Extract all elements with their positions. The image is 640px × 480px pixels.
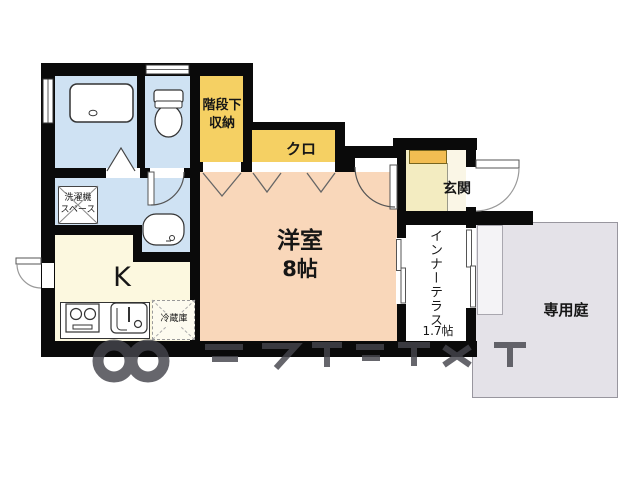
laundry-line1: 洗濯機 (64, 193, 91, 203)
bathroom-folding-door-icon (107, 148, 135, 171)
toilet-window-icon (146, 65, 189, 74)
kitchen-label: K (92, 260, 152, 295)
bathtub-icon (70, 84, 133, 122)
understairs-storage-label: 階段下 収納 (192, 97, 252, 133)
stove-icon (66, 304, 99, 332)
garden-sliding-window-icon (466, 228, 476, 308)
terrace-sliding-door-icon (396, 238, 406, 304)
room-door-swing-icon (355, 165, 397, 209)
understairs-line1: 階段下 (202, 98, 241, 113)
laundry-space-label: 洗濯機 スペース (54, 192, 102, 216)
toilet-door-swing-icon (148, 172, 184, 205)
inner-terrace-area-label: 1.7帖 (408, 324, 468, 340)
laundry-line2: スペース (61, 205, 96, 215)
washbasin-icon (143, 214, 184, 245)
closet-label: クロ (271, 140, 331, 160)
understairs-line2: 収納 (209, 116, 235, 131)
entrance-label: 玄関 (427, 180, 487, 198)
western-room-area-label: 8帖 (240, 256, 360, 283)
western-room-label: 洋室 (240, 227, 360, 257)
watermark (98, 345, 526, 377)
toilet-icon (154, 90, 183, 137)
kitchen-door-swing-icon (16, 258, 41, 288)
folding-door-marks (203, 173, 335, 196)
refrigerator-label: 冷蔵庫 (154, 314, 194, 326)
private-garden-label: 専用庭 (536, 301, 596, 321)
floor-plan: 洋室 8帖 K クロ 階段下 収納 玄関 インナーテラス 1.7帖 専用庭 洗濯… (0, 0, 640, 480)
kitchen-sink-icon (111, 303, 147, 333)
bathroom-window-icon (43, 79, 53, 123)
inner-terrace-label: インナーテラス (427, 228, 442, 328)
